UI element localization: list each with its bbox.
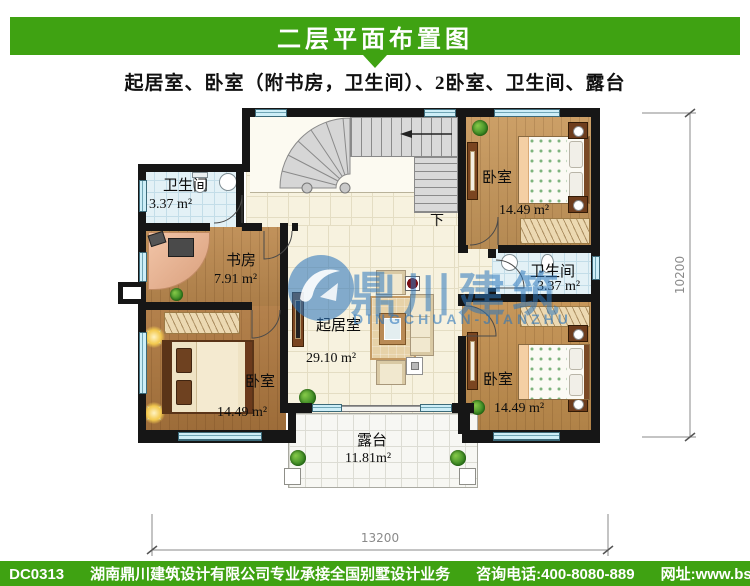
watermark-logo-icon — [286, 253, 356, 323]
room-name-study: 书房 — [226, 249, 256, 270]
watermark-brand-subtext: DINGCHUAN-JIANZHU — [353, 311, 572, 327]
dimension-height-label: 10200 — [673, 240, 687, 310]
sink — [219, 173, 237, 191]
footer-phone: 咨询电话:400-8080-889 — [476, 563, 634, 584]
tv-bench-panel — [470, 151, 475, 191]
nightstand — [568, 325, 588, 342]
bed-pillow — [569, 141, 583, 168]
terrace-plant-right — [450, 450, 466, 466]
logo-circle — [288, 255, 354, 321]
bedroom-bottom-right-bed — [518, 344, 590, 400]
plan-subtitle: 起居室、卧室（附书房，卫生间）、2卧室、卫生间、露台 — [0, 68, 750, 95]
room-area-bedroom-br: 14.49 m² — [494, 401, 544, 417]
window-bedroom-bl-south — [178, 432, 262, 441]
title-bar: 二层平面布置图 — [10, 17, 740, 55]
bed-fold — [519, 137, 529, 203]
page-title: 二层平面布置图 — [277, 19, 473, 54]
wall-stairhall-west — [242, 108, 250, 172]
room-name-bedroom-tr: 卧室 — [482, 166, 512, 187]
wall-study-north-2 — [242, 223, 262, 231]
dimension-line-right — [642, 113, 696, 437]
bedroom-bottom-left-bed — [162, 340, 254, 414]
terrace-pillar-right — [459, 468, 476, 485]
dimension-width-label: 13200 — [350, 531, 410, 545]
window-stairhall-right — [424, 109, 456, 117]
wall-study-north-3 — [292, 223, 298, 231]
bedroom-top-right-wardrobe — [520, 218, 590, 244]
window-living-south-left — [312, 404, 342, 412]
terrace-plant-left — [290, 450, 306, 466]
bed-blanket — [529, 137, 567, 203]
bed-pillow — [176, 348, 192, 373]
bed-headboard — [584, 345, 589, 399]
bedroom-top-right-tv-bench — [467, 142, 478, 200]
room-area-bedroom-bl: 14.49 m² — [217, 405, 267, 421]
nightstand-knob — [573, 200, 584, 211]
bed-fold — [519, 345, 529, 399]
tv-bench-panel — [470, 341, 475, 381]
wall-study-north-1 — [138, 223, 210, 231]
room-name-bedroom-br: 卧室 — [483, 368, 513, 389]
window-stairhall-left — [255, 109, 287, 117]
study-plant — [170, 288, 183, 301]
window-living-south-right — [420, 404, 452, 412]
room-area-terrace: 11.81m² — [345, 451, 391, 467]
nightstand-knob — [573, 126, 584, 137]
window-study-west — [139, 252, 147, 282]
wall-bedroom-tr-south-2 — [498, 245, 600, 253]
nightstand — [568, 122, 588, 139]
table-lamp — [411, 362, 419, 370]
room-name-bedroom-bl: 卧室 — [245, 370, 275, 391]
title-pointer-triangle — [363, 55, 387, 68]
dimension-ticks-bottom — [147, 546, 613, 554]
sofa-side-table — [406, 357, 423, 375]
room-area-study: 7.91 m² — [214, 272, 257, 288]
chimney-flue — [118, 282, 146, 304]
wall-bedroom-tr-west — [458, 108, 466, 253]
wall-bathroom-tl-north — [138, 164, 250, 172]
bed-pillow — [176, 380, 192, 405]
footer-website: 网址:www.bstzcs.com — [661, 563, 750, 584]
window-bathroom-tl-west — [139, 180, 147, 212]
footer-company: 湖南鼎川建筑设计有限公司专业承接全国别墅设计业务 — [90, 563, 450, 584]
terrace-pillar-left — [284, 468, 301, 485]
window-bedroom-br-south — [493, 432, 560, 441]
nightstand — [568, 196, 588, 213]
room-area-living: 29.10 m² — [306, 351, 356, 367]
stair-run-top — [350, 117, 458, 157]
room-name-bathroom-tl: 卫生间 — [163, 174, 208, 195]
window-bedroom-tr-north — [494, 109, 560, 117]
room-name-terrace: 露台 — [357, 429, 387, 450]
nightstand-knob — [573, 329, 584, 340]
terrace-sliding-door — [342, 405, 420, 412]
wall-bedroom-tr-south-1 — [458, 245, 468, 253]
wall-bathroom-tl-east — [236, 168, 244, 227]
bed-pillow — [569, 374, 583, 396]
floor-plan-page: 二层平面布置图 起居室、卧室（附书房，卫生间）、2卧室、卫生间、露台 下 — [0, 0, 750, 586]
bed-blanket — [196, 342, 238, 412]
window-bedroom-bl-west — [139, 332, 147, 394]
bedroom-top-right-plant — [472, 120, 488, 136]
wall-study-bedroom-divider — [142, 302, 252, 310]
bed-pillow — [569, 348, 583, 370]
bed-headboard — [164, 342, 172, 412]
bedroom-bottom-right-tv-bench — [467, 332, 478, 390]
bed-headboard — [584, 137, 589, 203]
nightstand-knob — [573, 399, 584, 410]
bedroom-top-right-bed — [518, 136, 590, 204]
computer-monitor — [168, 238, 194, 257]
room-area-bathroom-tl: 3.37 m² — [149, 197, 192, 213]
stair-run-right — [414, 157, 458, 213]
room-area-bedroom-tr: 14.49 m² — [499, 203, 549, 219]
footer-plan-number: 本图编号：DC0313 — [0, 563, 64, 584]
bedroom-bottom-left-wardrobe — [164, 312, 240, 334]
bed-pillow — [569, 172, 583, 199]
window-bathroom-r-east — [592, 256, 600, 280]
footer-bar: 本图编号：DC0313 湖南鼎川建筑设计有限公司专业承接全国别墅设计业务 咨询电… — [0, 561, 750, 586]
bed-blanket — [529, 345, 567, 399]
living-armchair-bottom — [376, 360, 406, 385]
stair-down-label: 下 — [430, 210, 444, 230]
